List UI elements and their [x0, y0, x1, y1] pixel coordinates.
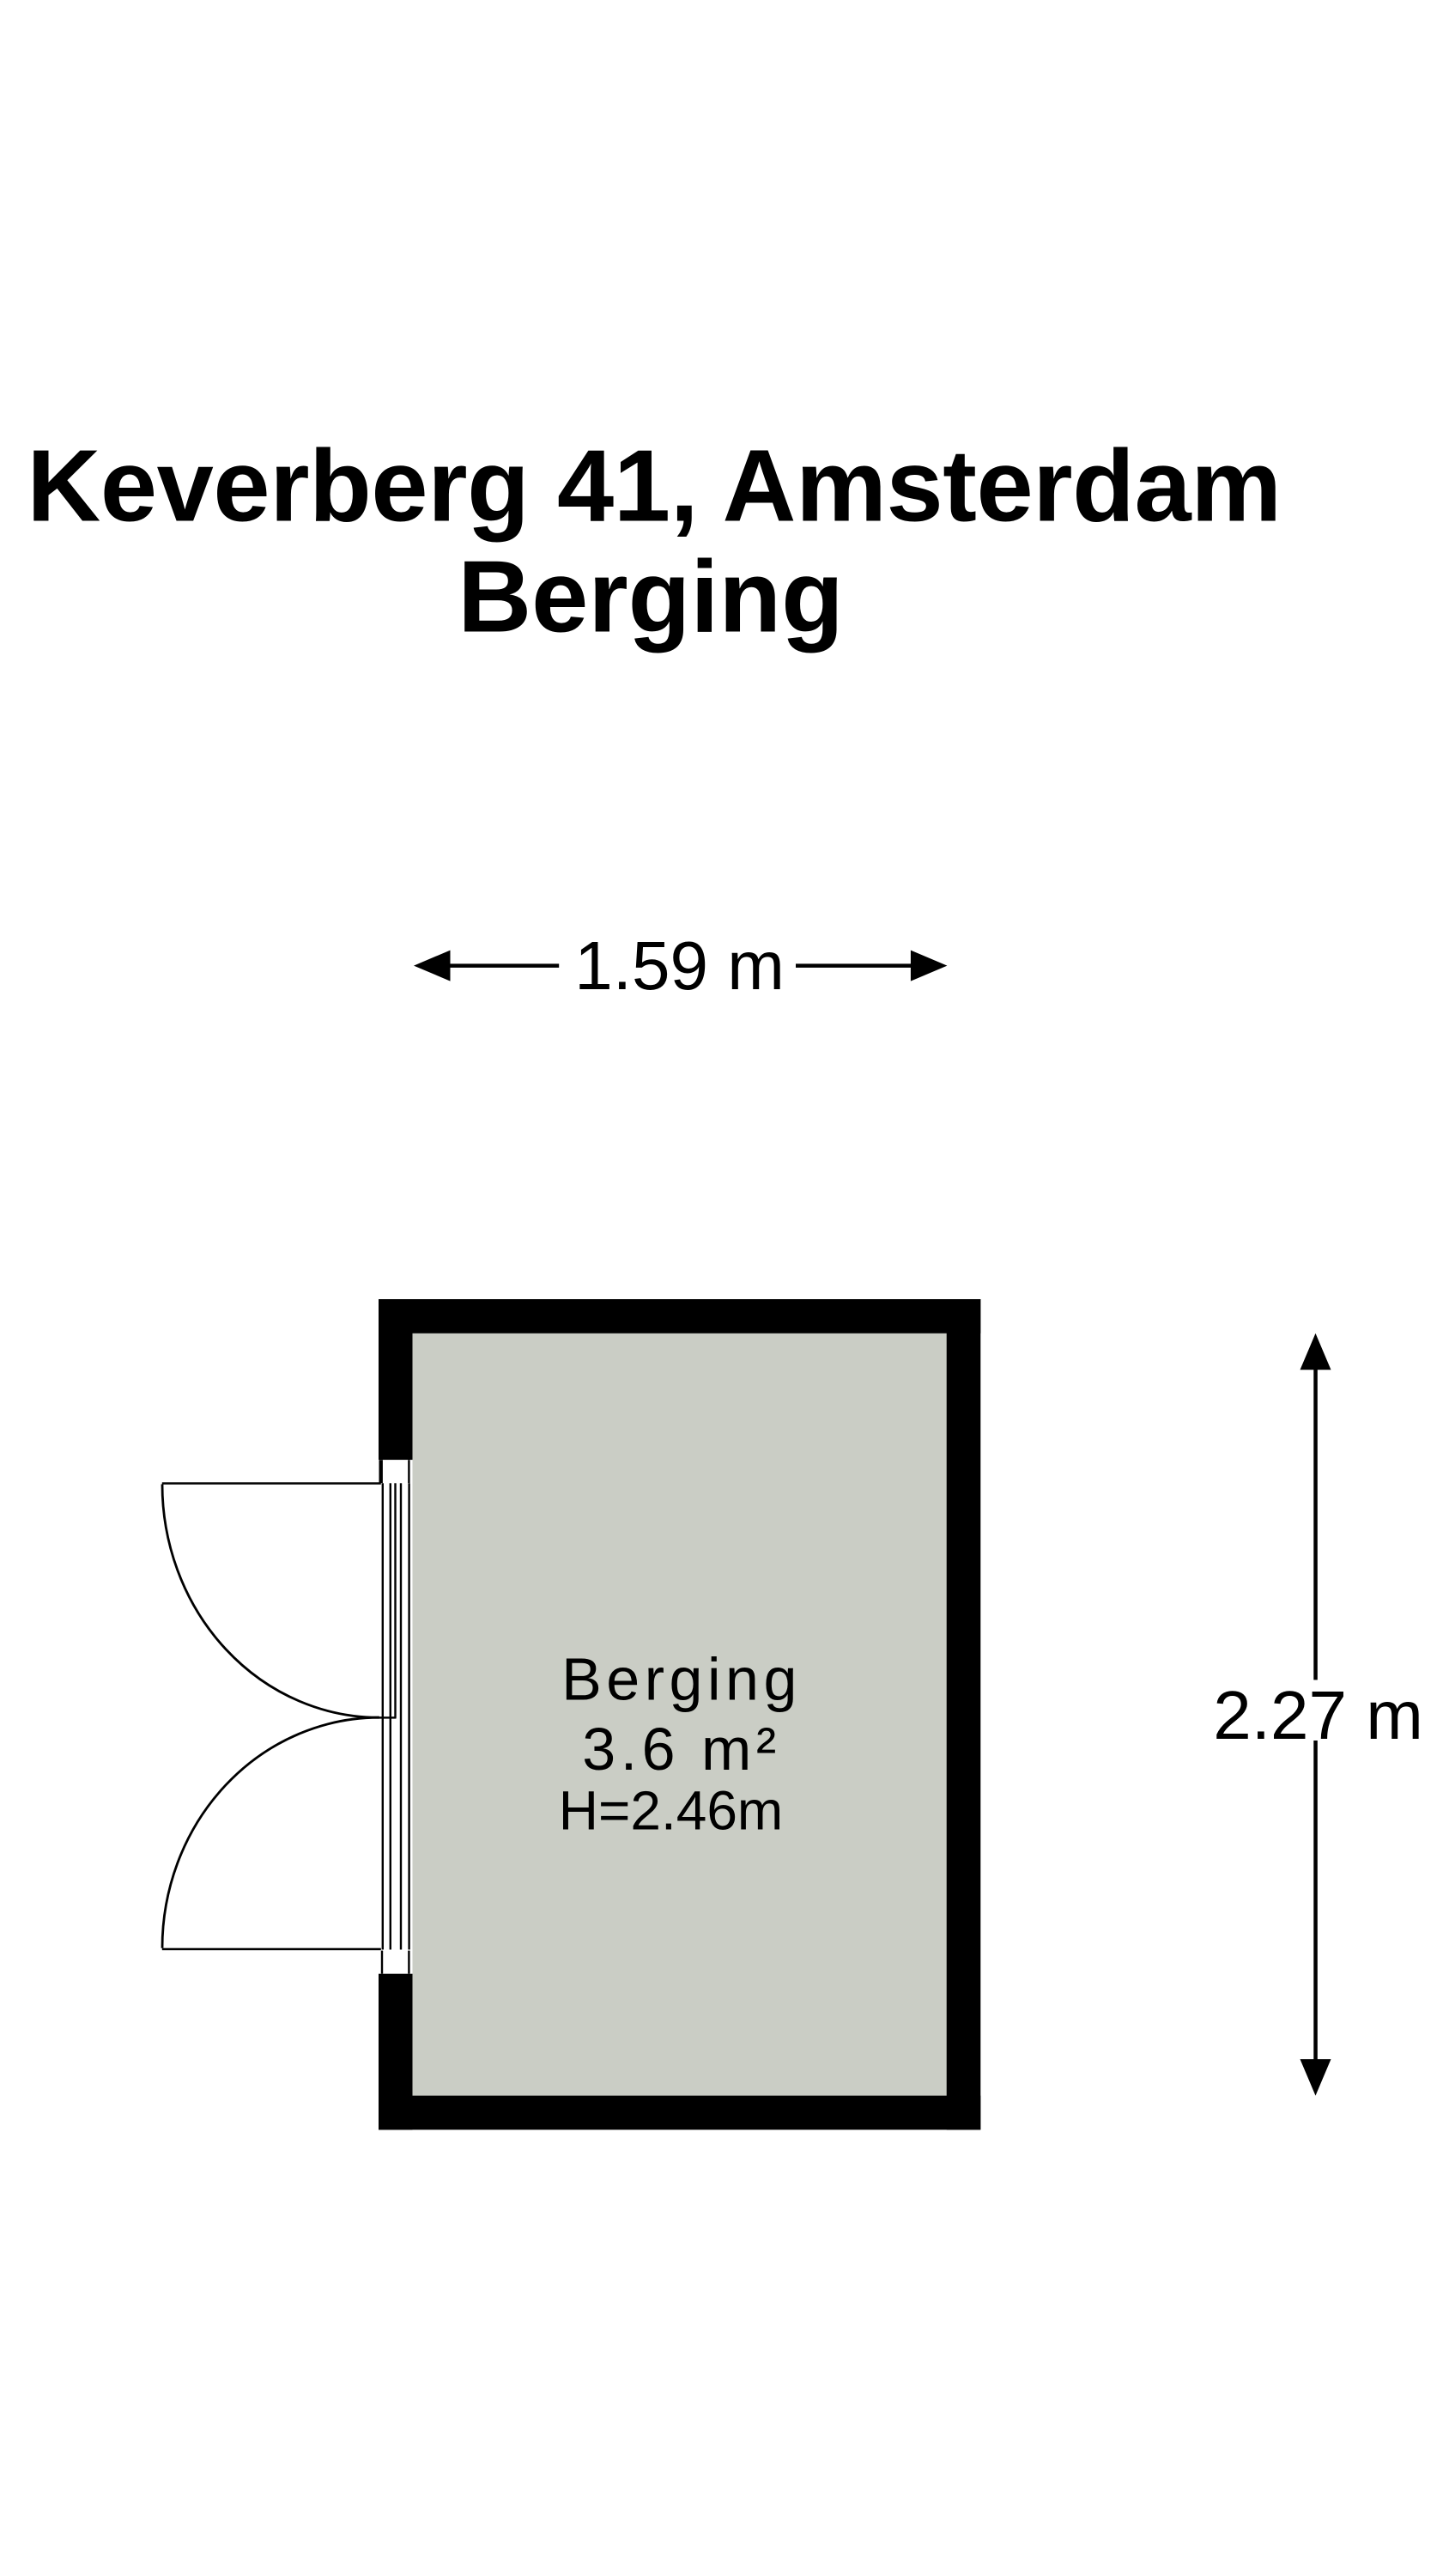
svg-text:1.59 m: 1.59 m — [574, 927, 785, 1004]
svg-text:Berging: Berging — [458, 539, 844, 653]
svg-text:Berging: Berging — [561, 1645, 802, 1712]
svg-text:3.6 m²: 3.6 m² — [582, 1716, 780, 1783]
svg-text:H=2.46m: H=2.46m — [559, 1779, 783, 1841]
svg-text:2.27 m: 2.27 m — [1213, 1677, 1423, 1753]
svg-text:Keverberg 41, Amsterdam: Keverberg 41, Amsterdam — [27, 429, 1281, 544]
